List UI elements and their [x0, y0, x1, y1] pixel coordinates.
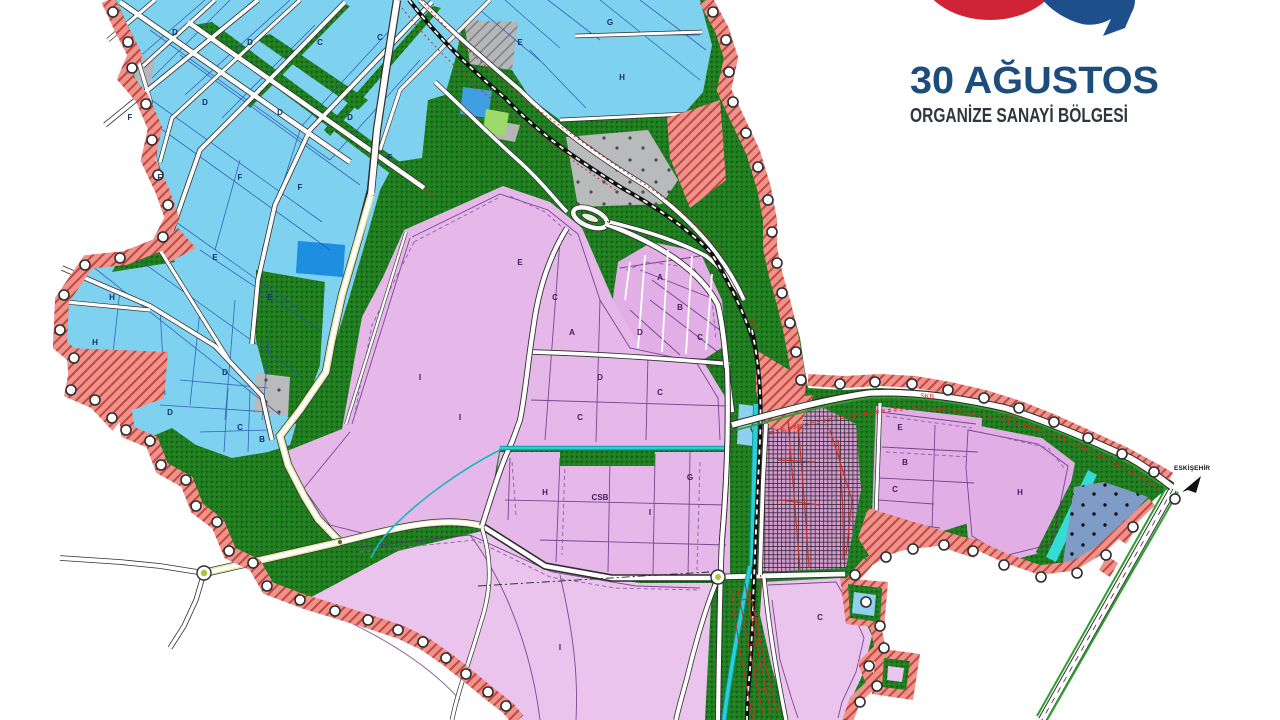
- svg-text:C: C: [892, 485, 898, 494]
- svg-text:E: E: [267, 293, 273, 302]
- svg-text:C: C: [577, 413, 583, 422]
- svg-text:E: E: [517, 258, 523, 267]
- svg-text:B: B: [902, 458, 908, 467]
- svg-text:D: D: [172, 28, 178, 37]
- svg-text:C: C: [697, 333, 703, 342]
- svg-text:ORGANİZE SANAYİ BÖLGESİ: ORGANİZE SANAYİ BÖLGESİ: [910, 104, 1128, 127]
- svg-text:G: G: [607, 18, 613, 27]
- svg-text:30 AĞUSTOS: 30 AĞUSTOS: [910, 58, 1159, 102]
- svg-text:D: D: [222, 368, 228, 377]
- svg-text:F: F: [388, 153, 393, 162]
- svg-text:F: F: [128, 113, 133, 122]
- svg-text:D: D: [247, 38, 253, 47]
- svg-text:I: I: [649, 508, 651, 517]
- svg-text:F: F: [238, 173, 243, 182]
- svg-text:G: G: [687, 473, 693, 482]
- svg-text:C: C: [552, 293, 558, 302]
- svg-text:B: B: [677, 303, 683, 312]
- svg-text:E: E: [517, 38, 523, 47]
- svg-text:B: B: [259, 435, 265, 444]
- svg-text:D: D: [597, 373, 603, 382]
- svg-text:H: H: [92, 338, 98, 347]
- svg-text:C: C: [817, 613, 823, 622]
- svg-text:C: C: [317, 38, 323, 47]
- svg-text:I: I: [559, 643, 561, 652]
- svg-text:F: F: [158, 173, 163, 182]
- svg-text:I: I: [459, 413, 461, 422]
- svg-text:SKB: SKB: [920, 393, 935, 401]
- svg-text:A: A: [569, 328, 575, 337]
- svg-text:D: D: [167, 408, 173, 417]
- svg-text:D: D: [637, 328, 643, 337]
- svg-text:D: D: [277, 108, 283, 117]
- svg-text:H: H: [109, 293, 115, 302]
- svg-text:F: F: [298, 183, 303, 192]
- svg-text:I: I: [419, 373, 421, 382]
- svg-text:D: D: [347, 113, 353, 122]
- svg-text:ESKİŞEHİR: ESKİŞEHİR: [1174, 463, 1210, 472]
- svg-text:C: C: [377, 33, 383, 42]
- svg-text:E: E: [897, 423, 903, 432]
- svg-text:H: H: [542, 488, 548, 497]
- svg-text:D: D: [202, 98, 208, 107]
- svg-text:C: C: [237, 423, 243, 432]
- svg-text:A: A: [657, 273, 663, 282]
- svg-text:E: E: [212, 253, 218, 262]
- svg-text:H: H: [619, 73, 625, 82]
- svg-text:C: C: [657, 388, 663, 397]
- svg-text:CSB: CSB: [592, 493, 609, 502]
- svg-text:H: H: [1017, 488, 1023, 497]
